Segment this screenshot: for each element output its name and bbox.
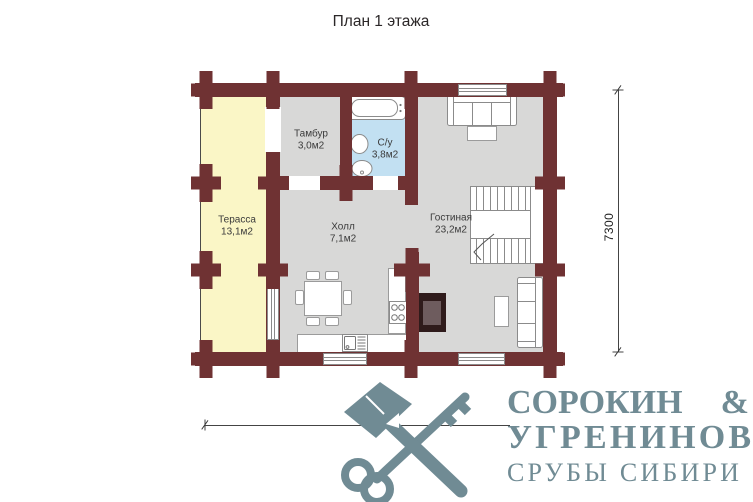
chair [295, 290, 304, 305]
wall-kitchen-divider [406, 252, 419, 366]
kitchen-sink [342, 334, 368, 352]
window [458, 353, 505, 365]
logo: СОРОКИН & УГРЕНИНОВ СРУБЫ СИБИРИ [507, 386, 749, 486]
logo-name-line1: СОРОКИН & [507, 386, 749, 419]
page-title: План 1 этажа [281, 13, 481, 31]
window [458, 84, 507, 96]
logo-ampersand: & [721, 386, 749, 419]
door-opening-bathroom [373, 176, 398, 190]
window [323, 353, 367, 365]
chair [325, 317, 339, 326]
sofa [447, 95, 517, 126]
axe-and-key-icon [336, 376, 506, 502]
door-opening-tambur [289, 176, 320, 190]
floor-plan-page: План 1 этажа [0, 0, 753, 502]
staircase [470, 186, 545, 264]
room-label-tambur: Тамбур 3,0м2 [294, 129, 328, 152]
stove [389, 301, 407, 324]
room-label-hall: Холл 7,1м2 [330, 222, 356, 245]
room-label-su: С/у 3,8м2 [372, 138, 398, 161]
room-label-living: Гостиная 23,2м2 [430, 213, 472, 236]
bathtub [348, 96, 406, 120]
sofa-2 [517, 277, 543, 348]
room-label-terrace: Терасса 13,1м2 [218, 215, 256, 238]
chair [306, 271, 320, 280]
window [267, 288, 279, 340]
wall-bathroom-left [340, 90, 352, 190]
logo-name-line2: УГРЕНИНОВ [507, 421, 749, 454]
logo-tagline: СРУБЫ СИБИРИ [507, 460, 749, 486]
chair [325, 271, 339, 280]
dimension-line-vertical [618, 90, 619, 352]
dimension-height: 7300 [602, 213, 616, 242]
chair [306, 317, 320, 326]
side-table [494, 296, 509, 327]
dining-table [304, 281, 342, 316]
wall-bottom [195, 352, 563, 366]
coffee-table [467, 126, 497, 141]
wall-top [195, 83, 563, 97]
wall-right [543, 83, 557, 366]
chair [343, 290, 352, 305]
door-opening-terrace [265, 107, 281, 152]
fireplace-inner [423, 301, 441, 325]
